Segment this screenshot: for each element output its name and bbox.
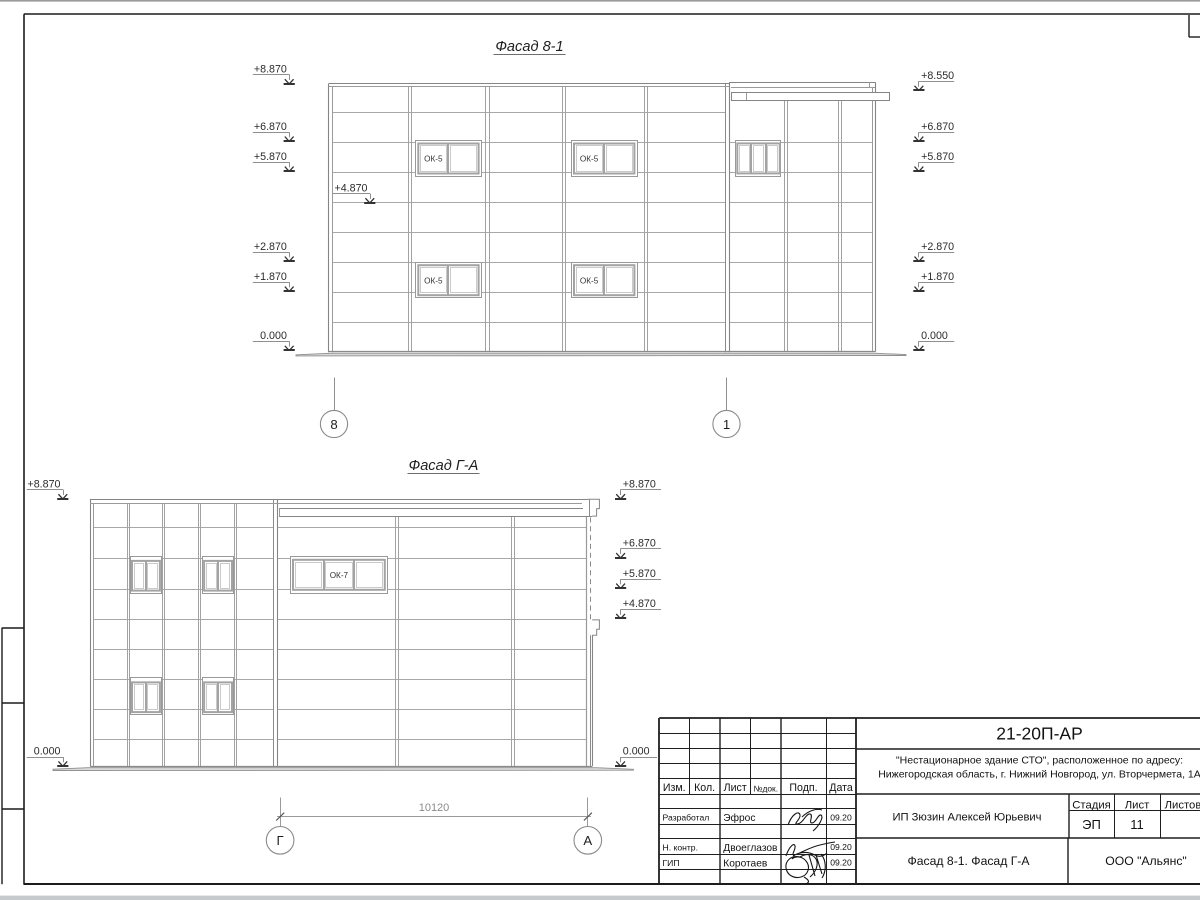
svg-text:+8.870: +8.870 — [623, 479, 656, 491]
svg-text:ООО "Альянс": ООО "Альянс" — [1105, 854, 1187, 868]
svg-text:+8.550: +8.550 — [921, 70, 954, 82]
svg-text:+5.870: +5.870 — [921, 151, 954, 163]
svg-text:10120: 10120 — [419, 802, 450, 814]
svg-text:+8.870: +8.870 — [254, 64, 287, 76]
svg-text:+4.870: +4.870 — [335, 183, 368, 195]
svg-text:Двоеглазов: Двоеглазов — [723, 843, 777, 854]
svg-text:№док.: №док. — [754, 783, 779, 793]
svg-text:8: 8 — [330, 417, 337, 432]
svg-text:09.20: 09.20 — [830, 858, 852, 868]
svg-text:А: А — [583, 833, 592, 848]
svg-text:Дата: Дата — [829, 782, 853, 794]
svg-text:ГИП: ГИП — [663, 858, 680, 868]
svg-text:0.000: 0.000 — [34, 746, 61, 758]
svg-text:0.000: 0.000 — [260, 330, 287, 342]
svg-text:Разработал: Разработал — [663, 813, 710, 823]
svg-text:+4.870: +4.870 — [623, 598, 656, 610]
svg-text:+6.870: +6.870 — [254, 121, 287, 133]
svg-text:Лист: Лист — [724, 782, 747, 794]
svg-text:Фасад 8-1: Фасад 8-1 — [495, 39, 563, 55]
svg-text:Подп.: Подп. — [789, 782, 817, 794]
svg-text:+1.870: +1.870 — [921, 271, 954, 283]
svg-text:+2.870: +2.870 — [254, 241, 287, 253]
svg-text:Стадия: Стадия — [1072, 800, 1111, 812]
svg-text:ОК-5: ОК-5 — [424, 276, 443, 285]
svg-text:Листов: Листов — [1165, 800, 1200, 812]
svg-text:1: 1 — [723, 417, 730, 432]
svg-text:Нижегородская область, г. Нижн: Нижегородская область, г. Нижний Новгоро… — [878, 769, 1200, 781]
svg-text:21-20П-АР: 21-20П-АР — [996, 724, 1083, 744]
svg-text:ОК-7: ОК-7 — [330, 571, 349, 580]
svg-text:Фасад 8-1. Фасад Г-А: Фасад 8-1. Фасад Г-А — [908, 854, 1031, 868]
svg-text:Эфрос: Эфрос — [723, 812, 755, 824]
svg-text:ОК-5: ОК-5 — [580, 276, 599, 285]
svg-text:+8.870: +8.870 — [28, 479, 61, 491]
svg-text:09.20: 09.20 — [830, 842, 852, 852]
svg-text:Г: Г — [277, 833, 284, 848]
svg-text:+1.870: +1.870 — [254, 271, 287, 283]
svg-text:+2.870: +2.870 — [921, 241, 954, 253]
svg-text:0.000: 0.000 — [921, 330, 948, 342]
svg-text:+5.870: +5.870 — [254, 151, 287, 163]
svg-text:Фасад Г-А: Фасад Г-А — [409, 458, 479, 474]
svg-text:Изм.: Изм. — [663, 782, 686, 794]
svg-text:Лист: Лист — [1125, 800, 1150, 812]
svg-text:Кол.: Кол. — [694, 782, 715, 794]
svg-text:ИП Зюзин Алексей Юрьевич: ИП Зюзин Алексей Юрьевич — [892, 811, 1041, 823]
svg-text:+6.870: +6.870 — [623, 537, 656, 549]
svg-text:+5.870: +5.870 — [623, 568, 656, 580]
svg-text:Коротаев: Коротаев — [723, 858, 767, 869]
svg-text:ОК-5: ОК-5 — [424, 155, 443, 164]
svg-text:0.000: 0.000 — [623, 746, 650, 758]
svg-text:Н. контр.: Н. контр. — [663, 842, 698, 852]
svg-text:+6.870: +6.870 — [921, 121, 954, 133]
svg-text:ОК-5: ОК-5 — [580, 155, 599, 164]
svg-text:11: 11 — [1130, 817, 1144, 832]
svg-text:ЭП: ЭП — [1082, 817, 1101, 832]
svg-text:09.20: 09.20 — [830, 813, 852, 823]
svg-text:"Нестационарное здание СТО", р: "Нестационарное здание СТО", расположенн… — [896, 755, 1183, 767]
